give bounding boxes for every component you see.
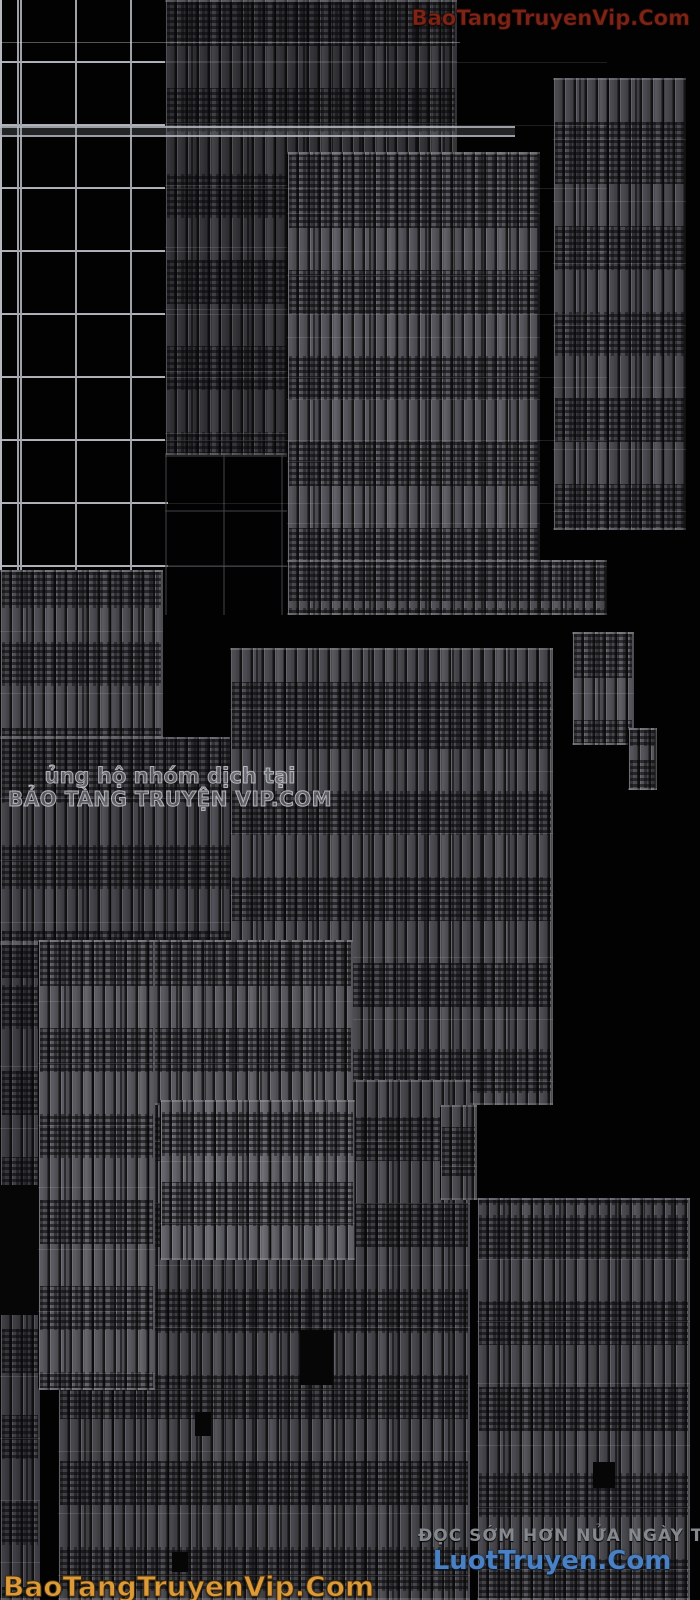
bookshelf-lower-left-light-column [38,940,155,1390]
watermark-baotang-top: BaoTangTruyenVip.Com [412,6,690,30]
bookshelf-middle-extension [440,1105,477,1200]
luottruyen-tagline: ĐỌC SỚM HƠN NỬA NGÀY TẠI [418,1526,686,1546]
bookshelf-top-center-light [287,152,540,615]
watermark-text: BaoTangTruyenVip.Com [3,1570,374,1600]
bright-shelf-band [0,126,515,137]
watermark-text: BaoTangTruyenVip.Com [412,6,690,30]
missing-book-gap [593,1462,615,1488]
black-notch [0,1185,38,1315]
bookshelf-small-right-2 [628,728,657,790]
bookshelf-top-right [553,78,686,530]
bookshelf-center-ledge [287,560,607,615]
support-note-line2: BẢO TÀNG TRUYỆN VIP.COM [8,788,332,811]
thin-shelf-line [0,42,460,43]
watermark-luottruyen: ĐỌC SỚM HƠN NỬA NGÀY TẠI LuotTruyen.Com [418,1526,686,1577]
bookshelf-small-right-1 [572,632,634,745]
bookshelf-mid-left-upper [0,570,163,738]
watermark-baotang-bottom: BaoTangTruyenVip.Com [3,1570,374,1600]
window-grid [0,0,168,570]
faint-grid [165,455,287,615]
luottruyen-site: LuotTruyen.Com [418,1546,686,1577]
bookshelf-lower-left-lightest [160,1100,355,1260]
missing-book-gap [195,1412,211,1436]
missing-book-gap [172,1552,188,1572]
support-note-line1: ủng hộ nhóm dịch tại [8,764,332,788]
comic-page: BaoTangTruyenVip.Com ủng hộ nhóm dịch tạ… [0,0,700,1600]
missing-book-gap [300,1330,333,1385]
watermark-support-note: ủng hộ nhóm dịch tại BẢO TÀNG TRUYỆN VIP… [8,764,332,811]
